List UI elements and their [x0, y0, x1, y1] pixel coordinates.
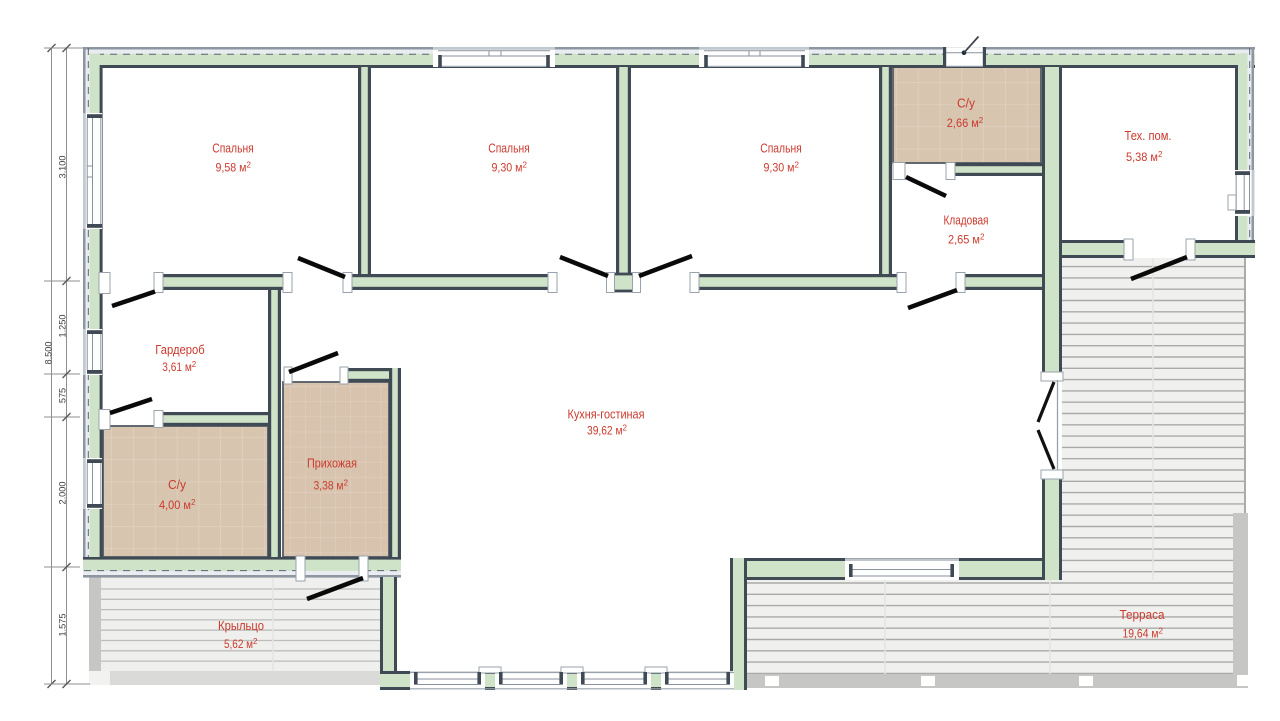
svg-text:Кладовая: Кладовая: [944, 213, 989, 228]
svg-text:С/у: С/у: [168, 477, 187, 492]
svg-text:Терраса: Терраса: [1120, 607, 1166, 622]
svg-text:3,38 м2: 3,38 м2: [314, 479, 349, 493]
svg-text:9,30 м2: 9,30 м2: [492, 161, 528, 175]
svg-text:1.575: 1.575: [58, 614, 68, 637]
svg-text:2,66 м2: 2,66 м2: [947, 116, 984, 130]
svg-text:9,30 м2: 9,30 м2: [764, 161, 800, 175]
svg-text:575: 575: [58, 388, 68, 403]
svg-text:2,65 м2: 2,65 м2: [948, 233, 985, 247]
svg-text:9,58 м2: 9,58 м2: [216, 161, 252, 175]
svg-text:2.000: 2.000: [58, 482, 68, 505]
svg-text:19,64 м2: 19,64 м2: [1123, 627, 1164, 641]
svg-text:Спальня: Спальня: [212, 141, 254, 156]
svg-text:1.250: 1.250: [58, 315, 68, 338]
svg-text:Прихожая: Прихожая: [307, 456, 357, 471]
svg-text:3,61 м2: 3,61 м2: [162, 360, 197, 374]
svg-text:3.100: 3.100: [58, 156, 68, 179]
svg-text:Кухня-гостиная: Кухня-гостиная: [568, 407, 645, 422]
svg-text:Тех. пом.: Тех. пом.: [1125, 128, 1172, 143]
svg-text:39,62 м2: 39,62 м2: [587, 424, 628, 438]
svg-text:4,00 м2: 4,00 м2: [159, 498, 196, 512]
svg-text:Спальня: Спальня: [760, 141, 802, 156]
svg-text:Гардероб: Гардероб: [155, 342, 205, 357]
svg-text:5,38 м2: 5,38 м2: [1126, 150, 1163, 164]
svg-text:С/у: С/у: [957, 96, 976, 111]
svg-text:5,62 м2: 5,62 м2: [224, 637, 258, 651]
svg-text:8.500: 8.500: [44, 342, 54, 365]
svg-text:Спальня: Спальня: [488, 141, 530, 156]
svg-text:Крыльцо: Крыльцо: [218, 618, 264, 633]
